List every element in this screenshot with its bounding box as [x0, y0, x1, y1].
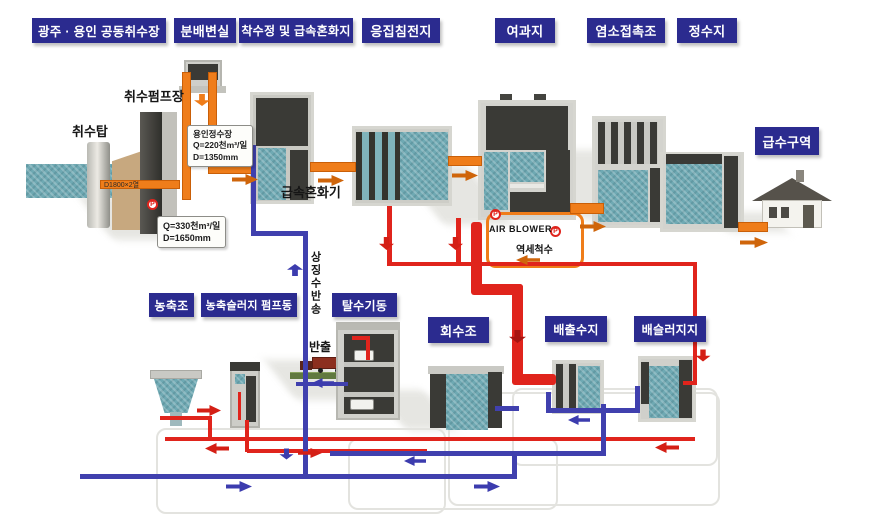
pump-icon: P — [147, 199, 158, 210]
dewatering-machine — [350, 399, 374, 410]
pipe-coagulation-to-filter — [448, 156, 482, 166]
process-flow-diagram: P P P 광주 · 용인 공동취수장 분배변실 착수정 및 급속혼화지 응집침… — [0, 0, 870, 531]
pipe-return-main-riser — [512, 453, 517, 479]
callout-yongin-name: 용인정수장 — [193, 129, 247, 140]
stage-label-chlorine-contact: 염소접촉조 — [587, 18, 665, 43]
stage-label-discharge-basin: 배출수지 — [545, 316, 607, 342]
pipe-coagulation-drain-1 — [387, 206, 392, 266]
coagulation-basin-baffles — [356, 132, 400, 200]
pipe-recovery-out — [495, 406, 519, 411]
annotation-haul-out: 반출 — [309, 338, 331, 355]
stage-label-sludge-basin: 배슬러지지 — [634, 316, 706, 342]
stage-label-supply-zone: 급수구역 — [755, 127, 819, 155]
stage-label-sludge-pump-house: 농축슬러지 펌프동 — [201, 293, 297, 317]
coagulation-basin-water — [400, 132, 448, 200]
house-chimney — [796, 170, 804, 182]
filter-basin-gallery — [486, 106, 568, 150]
callout-intake-line: Q=330천m³/일 D=1650mm — [157, 216, 226, 248]
recovery-tank-wall-right — [488, 372, 502, 428]
pipe-discharge-to-sludge-basin — [546, 408, 640, 413]
pump-icon: P — [490, 209, 501, 220]
callout-yongin-diameter: D=1350mm — [193, 152, 247, 163]
dewatering-shelf — [344, 362, 394, 367]
pipe-filter-to-chlorine — [570, 203, 604, 214]
clearwell-water — [666, 164, 722, 224]
callout-intake-flow: Q=330천m³/일 — [163, 220, 220, 232]
sludge-basin-wall-left — [641, 362, 649, 404]
receiving-well-opening — [256, 98, 308, 146]
annotation-air-blower: AIR BLOWER — [489, 224, 552, 234]
pipe-into-discharge-basin — [512, 374, 556, 385]
flow-arrow-up — [287, 264, 303, 276]
pipe-return-elbow — [251, 231, 308, 236]
pipe-clearwell-to-supply — [738, 222, 768, 232]
filter-basin-water-mid — [510, 152, 544, 182]
annotation-pipe-spec: D1800×2열 — [104, 180, 139, 190]
sludge-pump-house-interior — [246, 376, 256, 422]
sludge-pump-house-window — [235, 374, 245, 384]
stage-label-dewatering-house: 탈수기동 — [332, 293, 397, 317]
stage-label-filter-basin: 여과지 — [495, 18, 555, 43]
stage-label-thickener: 농축조 — [149, 293, 194, 317]
dewatering-machine — [354, 350, 374, 361]
thickener-rim — [150, 370, 202, 379]
callout-yongin-flow: Q=220천m³/일 — [193, 140, 247, 151]
pipe-discharge-stub — [546, 392, 551, 412]
annotation-backwash-water: 역세척수 — [516, 241, 553, 256]
stage-label-recovery-tank: 회수조 — [428, 317, 489, 343]
callout-intake-diameter: D=1650mm — [163, 232, 220, 244]
stage-label-clearwell: 정수지 — [677, 18, 737, 43]
stage-label-intake-station: 광주 · 용인 공동취수장 — [32, 18, 166, 43]
callout-yongin-plant: 용인정수장 Q=220천m³/일 D=1350mm — [187, 125, 253, 167]
annotation-intake-tower: 취수탑 — [72, 121, 108, 140]
pipe-thickener-out — [160, 416, 212, 420]
filter-basin-water-left — [484, 152, 508, 210]
chlorine-contact-fins — [598, 122, 658, 164]
dewatering-house-roof — [336, 322, 400, 330]
discharge-basin-water — [578, 366, 600, 410]
annotation-rapid-mixer: 급속혼화기 — [281, 182, 341, 201]
pipe-pump-house-drop — [245, 420, 249, 452]
stage-label-receiving-well: 착수정 및 급속혼화지 — [239, 18, 353, 43]
house-window — [781, 207, 789, 218]
annotation-supernatant-return: 상징수반송 — [307, 251, 323, 316]
sludge-basin-water — [649, 366, 679, 418]
house-roof — [752, 178, 832, 201]
annotation-intake-pump-station: 취수펌프장 — [124, 86, 184, 105]
pipe-dewatering-internal — [352, 336, 370, 340]
stage-label-coagulation-basin: 응집침전지 — [362, 18, 440, 43]
clearwell-wall — [724, 156, 738, 228]
pump-letter: P — [493, 211, 498, 218]
house-window — [769, 207, 777, 218]
sludge-basin-wall-right — [679, 360, 692, 418]
pipe-sludge-pump-internal — [238, 392, 241, 420]
filter-basin-underdrain — [510, 192, 546, 214]
pipe-return-main — [80, 474, 517, 479]
house-door — [803, 205, 814, 228]
recovery-tank-wall-left — [430, 374, 446, 428]
filter-trough — [510, 184, 544, 188]
discharge-basin-baffles — [556, 364, 576, 410]
flow-arrow-right — [197, 405, 221, 416]
truck-wheel — [318, 368, 323, 373]
chlorine-contact-water — [598, 170, 648, 222]
pump-letter: P — [150, 201, 155, 208]
pump-letter: P — [553, 228, 558, 235]
filter-basin-wall-right — [546, 150, 570, 212]
flow-arrow-right — [740, 237, 768, 248]
pipe-filter-backwash-main-v1 — [471, 222, 482, 290]
chlorine-contact-wall — [650, 168, 660, 222]
recovery-tank-water — [446, 374, 488, 430]
flow-arrow-down — [696, 350, 711, 362]
pipe-sludge-bottom-main — [165, 437, 695, 441]
stage-label-distribution-chamber: 분배변실 — [174, 18, 236, 43]
pipe-return-collector — [330, 451, 606, 456]
pipe-sludge-header — [387, 262, 697, 266]
thickener-water — [154, 379, 198, 413]
sludge-pump-house-roof — [230, 362, 260, 371]
pipe-into-sludge-basin — [683, 381, 697, 385]
pipe-receiving-to-coagulation — [310, 162, 356, 172]
dewatering-shelf — [344, 392, 394, 397]
clearwell-cover — [666, 154, 722, 164]
pipe-sludge-basin-stub — [635, 386, 640, 412]
